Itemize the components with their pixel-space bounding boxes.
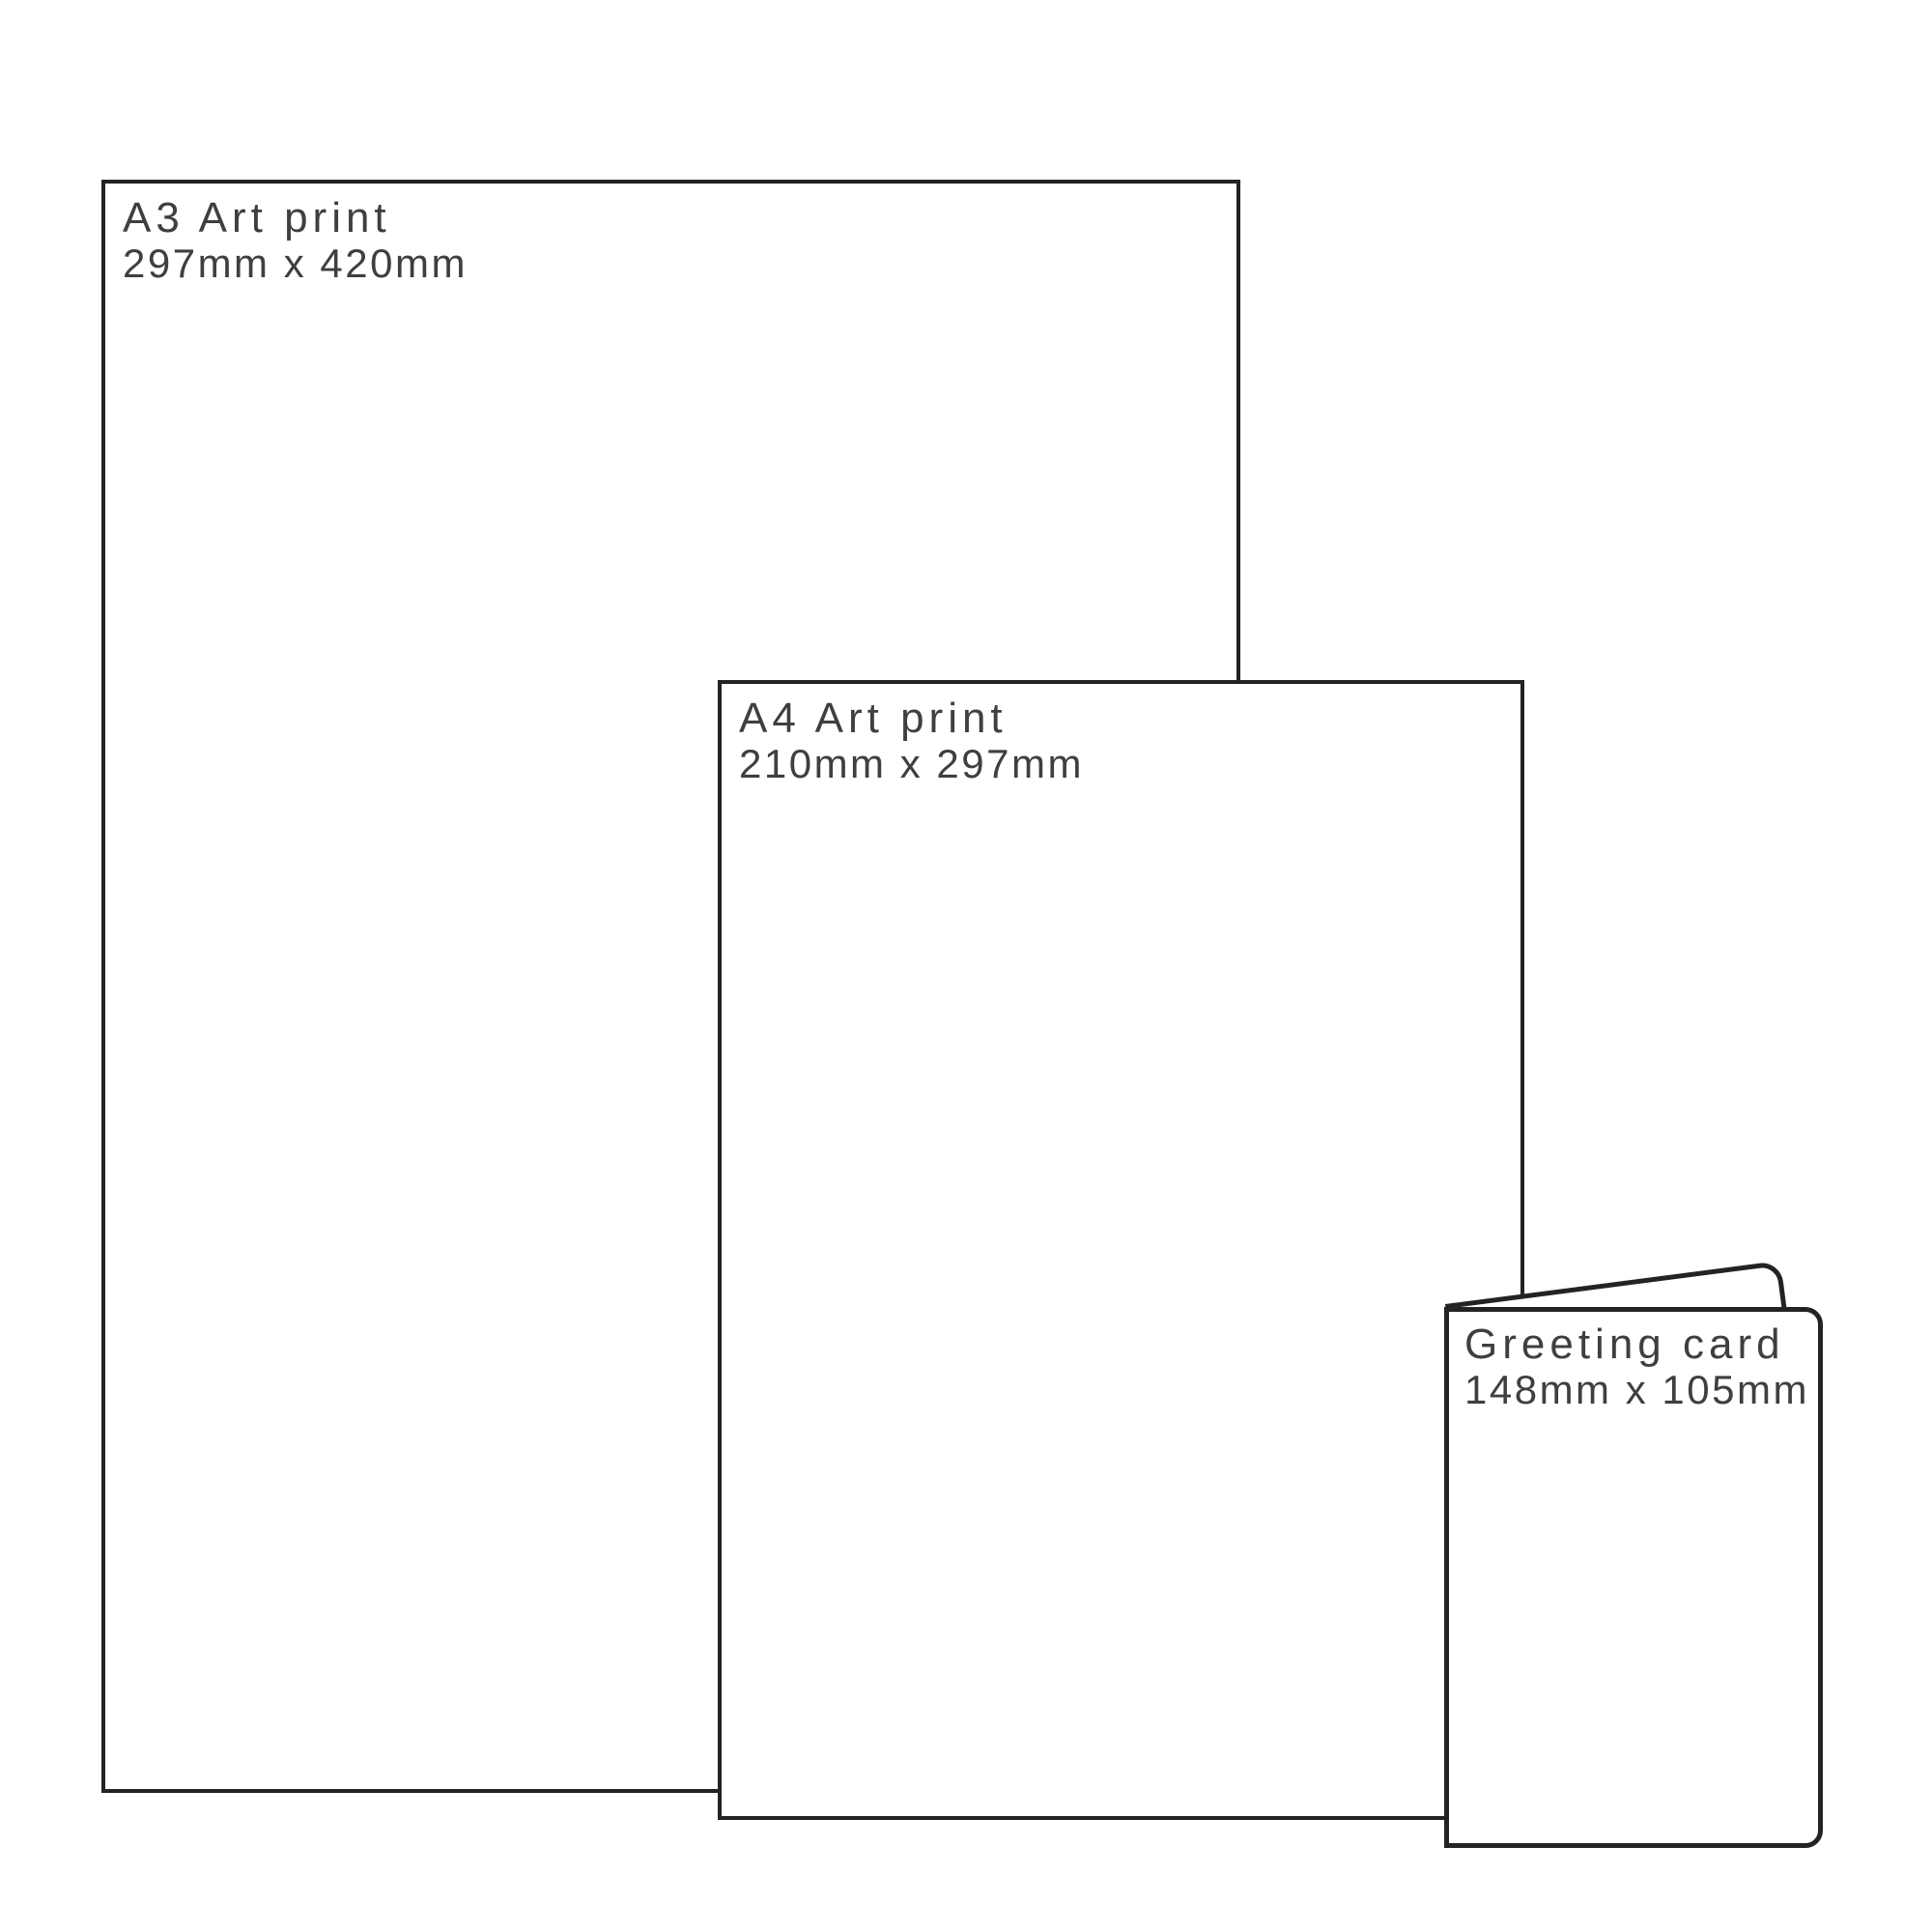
print-size-comparison-diagram: A3 Art print 297mm x 420mm A4 Art print … xyxy=(0,0,1932,1932)
print-dimensions: 297mm x 420mm xyxy=(123,241,1236,286)
print-title: A4 Art print xyxy=(739,696,1520,742)
greeting-card-label: Greeting card 148mm x 105mm xyxy=(1449,1312,1818,1412)
print-dimensions: 210mm x 297mm xyxy=(739,742,1520,786)
print-title: A3 Art print xyxy=(123,195,1236,241)
a4-label: A4 Art print 210mm x 297mm xyxy=(722,684,1520,786)
greeting-card-front: Greeting card 148mm x 105mm xyxy=(1444,1307,1823,1848)
a4-sheet-outline: A4 Art print 210mm x 297mm xyxy=(718,680,1524,1820)
print-title: Greeting card xyxy=(1464,1321,1818,1368)
a3-label: A3 Art print 297mm x 420mm xyxy=(105,184,1236,286)
print-dimensions: 148mm x 105mm xyxy=(1464,1368,1818,1412)
